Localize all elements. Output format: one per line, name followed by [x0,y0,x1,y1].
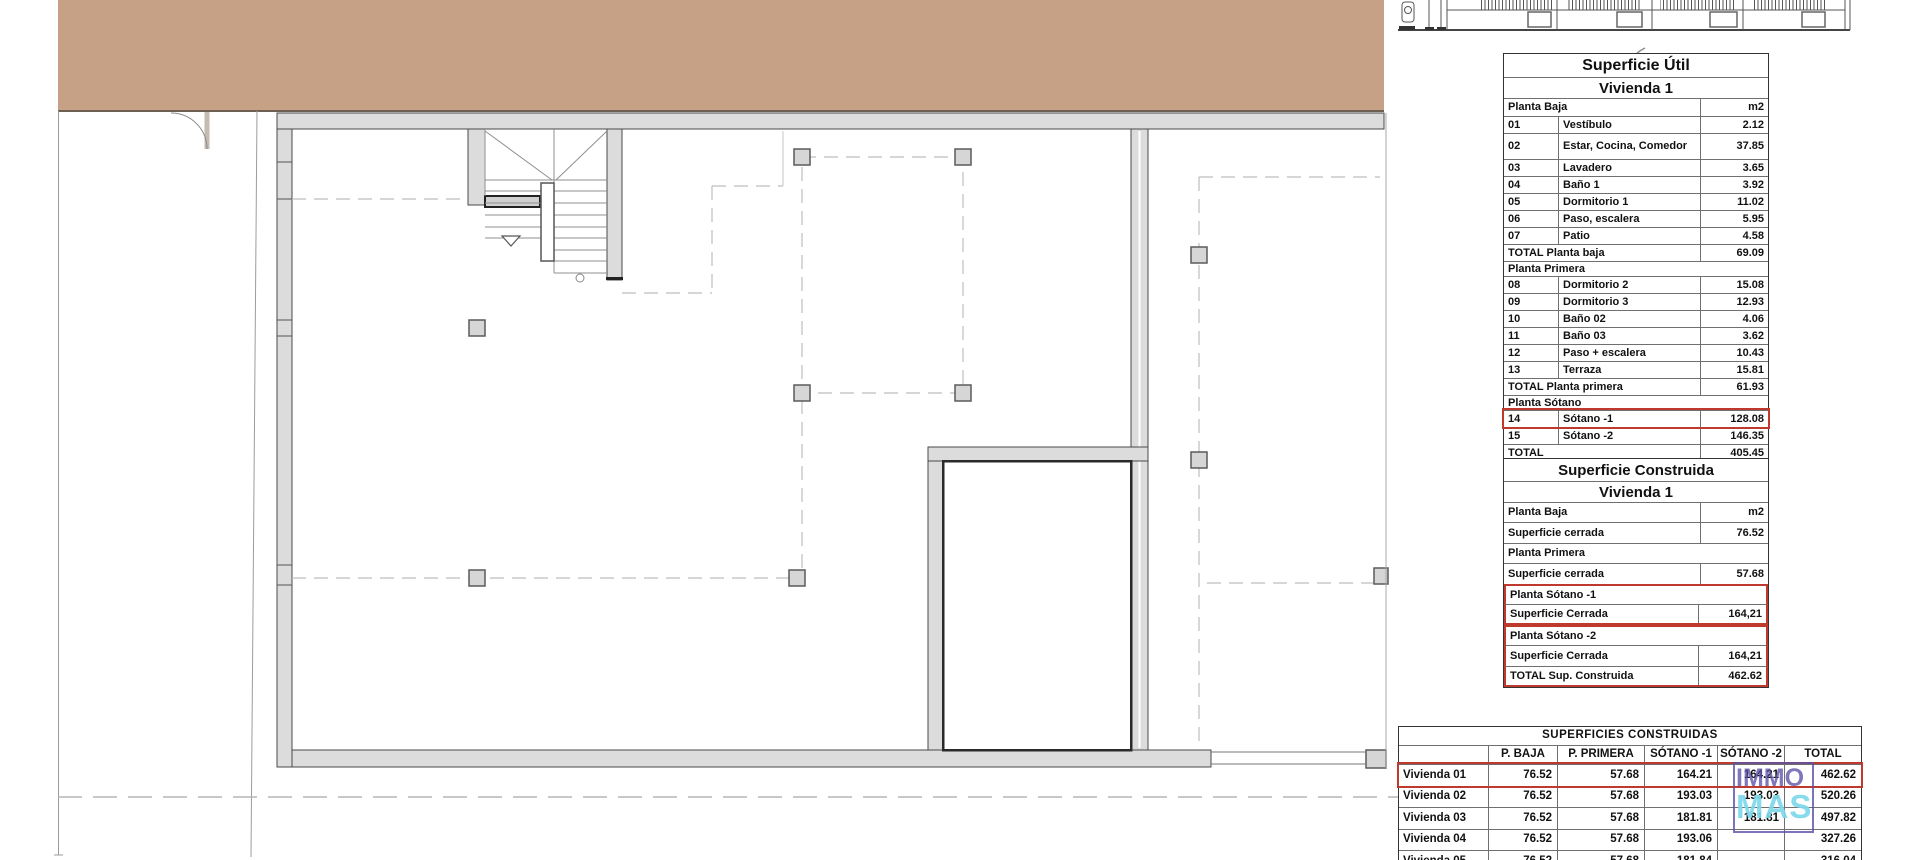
area-value: 10.43 [1700,345,1768,361]
stair-handrail [541,183,554,261]
table-row: Superficie cerrada 57.68 [1504,563,1768,584]
vivienda-name: Vivienda 05 [1399,851,1488,860]
area-value: 146.35 [1700,428,1768,444]
area-value: 3.92 [1700,177,1768,193]
area-value: 3.65 [1700,160,1768,176]
row-label: 13 [1504,362,1558,378]
room-name: Baño 1 [1558,177,1700,193]
area-value [1700,262,1768,276]
area-value: 2.12 [1700,117,1768,133]
elevation-windows [1528,12,1825,27]
table-row: 14 Sótano -1 128.08 [1504,410,1768,427]
table-title: SUPERFICIES CONSTRUIDAS [1399,727,1861,745]
area-value: 76.52 [1700,523,1768,543]
row-label: 02 [1504,134,1558,159]
room-name: Estar, Cocina, Comedor [1558,134,1700,159]
vivienda-name: Vivienda 04 [1399,830,1488,851]
table-row: Superficie Cerrada 164,21 [1504,604,1768,625]
watermark-line2: MAS [1736,791,1812,822]
room-name: Baño 02 [1558,311,1700,327]
area-value: 462.62 [1698,667,1766,685]
row-label: 09 [1504,294,1558,310]
table-row: 01 Vestíbulo 2.12 [1504,116,1768,133]
row-label: 07 [1504,228,1558,244]
area-value: m2 [1700,503,1768,522]
room-name: Sótano -2 [1558,428,1700,444]
row-label: Planta Sótano [1504,396,1700,410]
area-value: 12.93 [1700,294,1768,310]
architectural-plan-sheet: Superficie Útil Vivienda 1 Planta Baja m… [0,0,1920,860]
room-name: Patio [1558,228,1700,244]
table-row: 05 Dormitorio 1 11.02 [1504,193,1768,210]
row-label: Superficie Cerrada [1506,646,1698,666]
table-row: 15 Sótano -2 146.35 [1504,427,1768,444]
table-title: Superficie Construida [1504,459,1768,481]
neighbour-unit-edges [1211,113,1386,768]
row-label: Planta Sótano -1 [1506,586,1698,604]
area-value: 57.68 [1700,564,1768,584]
table-row: Planta Sótano [1504,395,1768,410]
table-row: 07 Patio 4.58 [1504,227,1768,244]
basement-room [928,447,1148,750]
elevation-left-posts [1399,0,1446,30]
table-row: Superficie cerrada 76.52 [1504,522,1768,543]
area-value: 128.08 [1700,411,1768,427]
table-row: 09 Dormitorio 3 12.93 [1504,293,1768,310]
table-row: 02 Estar, Cocina, Comedor 37.85 [1504,133,1768,159]
table-row: 06 Paso, escalera 5.95 [1504,210,1768,227]
area-value: 11.02 [1700,194,1768,210]
superficie-util-table: Superficie Útil Vivienda 1 Planta Baja m… [1503,53,1769,462]
room-name: Dormitorio 1 [1558,194,1700,210]
table-row: Planta Baja m2 [1504,98,1768,116]
vivienda-name: Vivienda 01 [1399,765,1488,786]
area-value: m2 [1700,99,1768,116]
row-label: Planta Primera [1504,262,1700,276]
area-value [1700,396,1768,410]
row-label: Planta Baja [1504,503,1700,522]
row-label: TOTAL Planta baja [1504,245,1700,261]
row-label: Planta Primera [1504,544,1700,563]
stairwell [468,129,623,282]
table-row: Planta Sótano -1 [1504,584,1768,604]
room-name: Terraza [1558,362,1700,378]
superficie-construida-table: Superficie Construida Vivienda 1 Planta … [1503,458,1769,688]
vivienda-row: Vivienda 05 76.52 57.68 181.84 316.04 [1399,850,1861,860]
row-label: Superficie Cerrada [1506,605,1698,623]
row-label: 03 [1504,160,1558,176]
area-value: 15.08 [1700,277,1768,293]
hidden-edge-dashes [292,131,1380,745]
area-value: 4.06 [1700,311,1768,327]
area-value: 4.58 [1700,228,1768,244]
col-header-p-baja: P. BAJA [1488,746,1557,764]
table-row: 10 Baño 02 4.06 [1504,310,1768,327]
row-label: 11 [1504,328,1558,344]
table-row: 11 Baño 03 3.62 [1504,327,1768,344]
table-row: 13 Terraza 15.81 [1504,361,1768,378]
area-value: 15.81 [1700,362,1768,378]
site-boundary-lines [54,111,1500,857]
room-name: Sótano -1 [1558,411,1700,427]
table-row: Planta Baja m2 [1504,502,1768,522]
area-value: 61.93 [1700,379,1768,395]
table-row: 08 Dormitorio 2 15.08 [1504,276,1768,293]
table-title: Superficie Útil [1504,54,1768,77]
row-label: Superficie cerrada [1504,564,1700,584]
area-value: 3.62 [1700,328,1768,344]
row-label: Superficie cerrada [1504,523,1700,543]
table-row: 04 Baño 1 3.92 [1504,176,1768,193]
table-row: Planta Primera [1504,543,1768,563]
vivienda-name: Vivienda 03 [1399,808,1488,829]
room-name: Dormitorio 2 [1558,277,1700,293]
table-row: Planta Sótano -2 [1504,625,1768,645]
vivienda-name: Vivienda 02 [1399,787,1488,808]
terrace-band [58,0,1384,111]
row-label: Planta Baja [1504,99,1700,116]
table-subtitle: Vivienda 1 [1504,77,1768,98]
room-name: Paso + escalera [1558,345,1700,361]
table-row: TOTAL Planta primera 61.93 [1504,378,1768,395]
area-value: 164,21 [1698,646,1766,666]
row-label: 12 [1504,345,1558,361]
row-label: Planta Sótano -2 [1506,627,1698,645]
area-value: 5.95 [1700,211,1768,227]
main-unit-walls [277,113,1384,767]
row-label: TOTAL Sup. Construida [1506,667,1698,685]
table-row: TOTAL Sup. Construida 462.62 [1504,666,1768,687]
table-row: 12 Paso + escalera 10.43 [1504,344,1768,361]
table-row: TOTAL Planta baja 69.09 [1504,244,1768,261]
area-value: 37.85 [1700,134,1768,159]
room-name: Paso, escalera [1558,211,1700,227]
room-name: Vestíbulo [1558,117,1700,133]
area-value: 69.09 [1700,245,1768,261]
room-name: Lavadero [1558,160,1700,176]
table-row: 03 Lavadero 3.65 [1504,159,1768,176]
door-swing [171,112,207,149]
immo-mas-watermark: IMMO MAS [1733,762,1814,833]
row-label: 05 [1504,194,1558,210]
area-value [1698,627,1766,645]
row-label: 10 [1504,311,1558,327]
row-label: 06 [1504,211,1558,227]
row-label: 08 [1504,277,1558,293]
table-row: Planta Primera [1504,261,1768,276]
room-name: Baño 03 [1558,328,1700,344]
area-value [1700,544,1768,563]
room-name: Dormitorio 3 [1558,294,1700,310]
stair-down-arrow [502,236,520,246]
row-label: 04 [1504,177,1558,193]
row-label: 01 [1504,117,1558,133]
row-label: 15 [1504,428,1558,444]
table-subtitle: Vivienda 1 [1504,481,1768,502]
col-header-p-primera: P. PRIMERA [1557,746,1644,764]
row-label: 14 [1504,411,1558,427]
table-row: Superficie Cerrada 164,21 [1504,645,1768,666]
area-value [1698,586,1766,604]
col-header-sotano-1: SÓTANO -1 [1644,746,1717,764]
row-label: TOTAL Planta primera [1504,379,1700,395]
area-value: 164,21 [1698,605,1766,623]
